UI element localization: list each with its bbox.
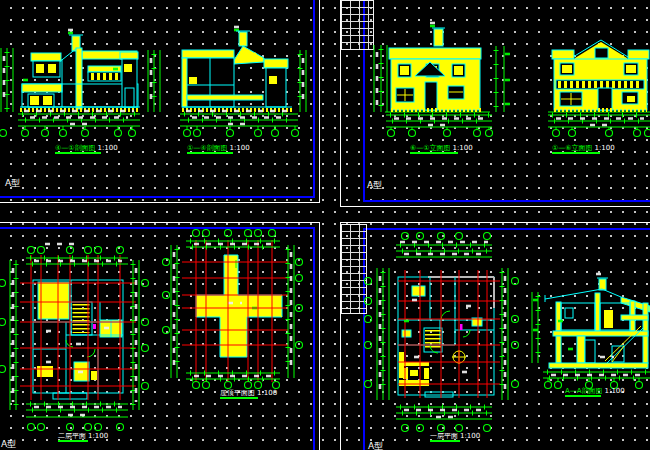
title-text: 一层平面 (430, 432, 458, 440)
title-section-left: ④—①剖面图1:100 (55, 144, 118, 156)
title-scale: 1:100 (257, 389, 277, 397)
floor-plan-second (0, 244, 149, 431)
type-label-top-right: A型 (367, 180, 382, 190)
elevation-drawing-right (496, 40, 650, 137)
title-scale: 1:100 (230, 144, 250, 152)
title-scale: 1:100 (98, 144, 118, 152)
title-section-aa: A—A剖面图1:100 (565, 387, 625, 399)
title-text: 二层平面 (58, 432, 86, 440)
title-scale: 1:100 (88, 432, 108, 440)
elevation-drawing-left (374, 23, 493, 137)
title-plan-second: 二层平面1:100 (58, 432, 108, 444)
floor-plan-first (365, 233, 519, 432)
title-scale: 1:100 (605, 387, 625, 395)
title-elevation-right: ①—⑥立面图1:100 (552, 144, 615, 156)
section-drawing-right (148, 27, 306, 137)
type-label-bottom-left: A型 (1, 439, 16, 449)
drawings-layer (0, 0, 650, 450)
title-roof-plan: 屋顶平面图1:100 (220, 389, 277, 401)
section-drawing-left (0, 30, 140, 137)
title-plan-first: 一层平面1:100 (430, 432, 480, 444)
title-elevation-left: ⑥—①立面图1:100 (410, 144, 473, 156)
roof-plan (163, 230, 303, 389)
cad-viewport: ④—①剖面图1:100 ①—④剖面图1:100 ⑥—①立面图1:100 ①—⑥立… (0, 0, 650, 450)
title-scale: 1:100 (453, 144, 473, 152)
title-text: 屋顶平面图 (220, 389, 255, 397)
title-text: A—A剖面图 (565, 387, 603, 395)
title-text: ④—①剖面图 (55, 144, 96, 152)
type-label-bottom-right: A型 (368, 441, 383, 450)
title-text: ①—④剖面图 (187, 144, 228, 152)
title-scale: 1:100 (595, 144, 615, 152)
type-label-top-left: A型 (5, 178, 20, 188)
title-text: ⑥—①立面图 (410, 144, 451, 152)
title-section-right: ①—④剖面图1:100 (187, 144, 250, 156)
section-drawing-aa (532, 274, 650, 389)
title-text: ①—⑥立面图 (552, 144, 593, 152)
title-scale: 1:100 (460, 432, 480, 440)
